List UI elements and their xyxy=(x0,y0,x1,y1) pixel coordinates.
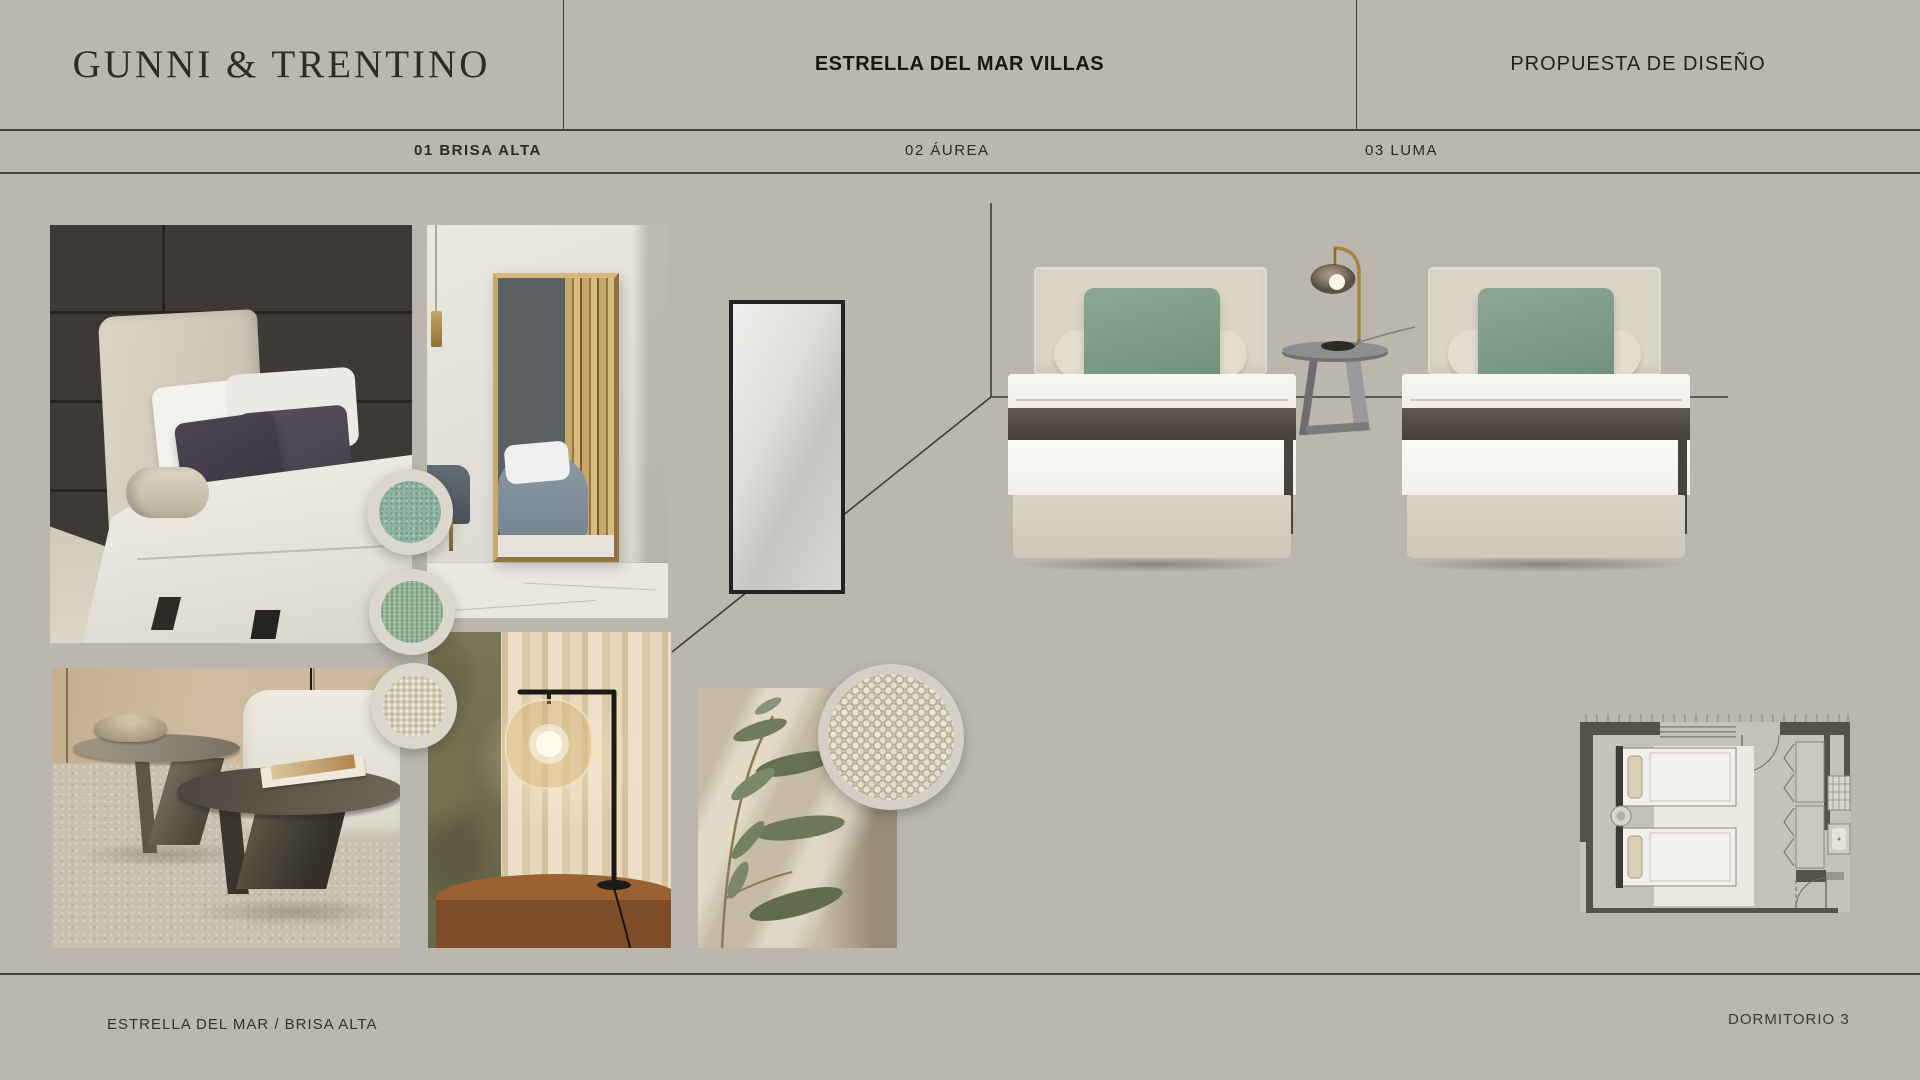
plan-window xyxy=(1660,726,1736,728)
stone-bowl xyxy=(94,714,167,742)
floor-shadow xyxy=(1404,557,1688,572)
table-leg-plate xyxy=(1345,358,1370,432)
mirror-reflection-floor xyxy=(498,535,614,557)
olive-leaf xyxy=(754,811,846,845)
plan-window xyxy=(1660,731,1736,733)
glass-table-lamp xyxy=(428,632,671,948)
plan-wall xyxy=(1586,908,1838,913)
table-leg-plate xyxy=(1299,358,1318,435)
lamp-cable xyxy=(1353,327,1415,344)
olive-leaf xyxy=(727,763,779,806)
photo-gold-standing-mirror xyxy=(427,225,668,618)
olive-leaf xyxy=(747,880,846,928)
table-leg-shelf xyxy=(1305,422,1370,435)
plan-wall xyxy=(1844,722,1850,777)
plan-bed-headboard xyxy=(1616,826,1623,888)
plan-bedside-table-inner xyxy=(1617,812,1626,821)
plan-wall xyxy=(1580,722,1593,842)
photo-bed-dark-panel-wall xyxy=(50,225,412,643)
lamp-bulb xyxy=(1329,274,1345,290)
door-frame-line xyxy=(66,668,68,774)
photo-nesting-coffee-tables xyxy=(52,668,400,948)
plan-bed-headboard xyxy=(1616,746,1623,808)
sconce-cord xyxy=(435,225,437,311)
plan-wardrobe xyxy=(1796,806,1824,868)
design-proposal-page: GUNNI & TRENTINO ESTRELLA DEL MAR VILLAS… xyxy=(0,0,1920,1080)
upholstered-base xyxy=(1407,495,1685,558)
photo-table-lamp-curtain xyxy=(428,632,671,948)
fabric-swatch-teal-linen xyxy=(367,469,453,555)
black-frame-mirror xyxy=(729,300,845,594)
side-table-and-lamp-render xyxy=(1260,240,1500,492)
floor-plan-dormitorio xyxy=(1574,712,1856,948)
sheet-fold xyxy=(1016,399,1288,401)
fabric-swatch-sage-weave xyxy=(369,569,455,655)
swatch-texture xyxy=(828,674,954,800)
plan-cabinet-block xyxy=(1796,870,1826,882)
plan-dimension-ticks xyxy=(1586,714,1848,722)
plan-cabinet-block xyxy=(1826,872,1844,880)
dark-bed-runner xyxy=(1008,408,1295,440)
gold-mirror-frame xyxy=(493,273,619,562)
table-shadow xyxy=(198,898,389,926)
mirror-glass xyxy=(733,304,841,590)
swatch-texture xyxy=(379,481,441,543)
floor-shadow xyxy=(1010,557,1294,572)
wood-table-front xyxy=(436,900,671,948)
olive-leaf xyxy=(753,694,784,718)
plan-window xyxy=(1660,736,1736,738)
bed-leg xyxy=(250,610,280,639)
fabric-swatch-boucle xyxy=(818,664,964,810)
plan-bed-pillow xyxy=(1628,836,1642,878)
plan-bed-pillow xyxy=(1628,756,1642,798)
plan-wall xyxy=(1780,722,1850,735)
upholstered-base xyxy=(1013,495,1291,558)
swatch-texture xyxy=(381,581,443,643)
plan-wall xyxy=(1586,840,1593,912)
plan-wardrobe xyxy=(1796,742,1824,802)
mirror-reflection-pillow xyxy=(504,440,571,484)
lamp-bulb xyxy=(536,731,562,757)
fabric-swatch-cream-weave xyxy=(371,663,457,749)
brass-wall-sconce xyxy=(431,311,442,347)
swatch-texture xyxy=(383,675,445,737)
twin-bed-render-left xyxy=(1004,267,1300,567)
lamp-base xyxy=(1321,341,1355,351)
bolster-cushion xyxy=(126,467,209,517)
plan-sink-drain xyxy=(1838,838,1841,841)
wall-shadow-band xyxy=(632,225,668,618)
